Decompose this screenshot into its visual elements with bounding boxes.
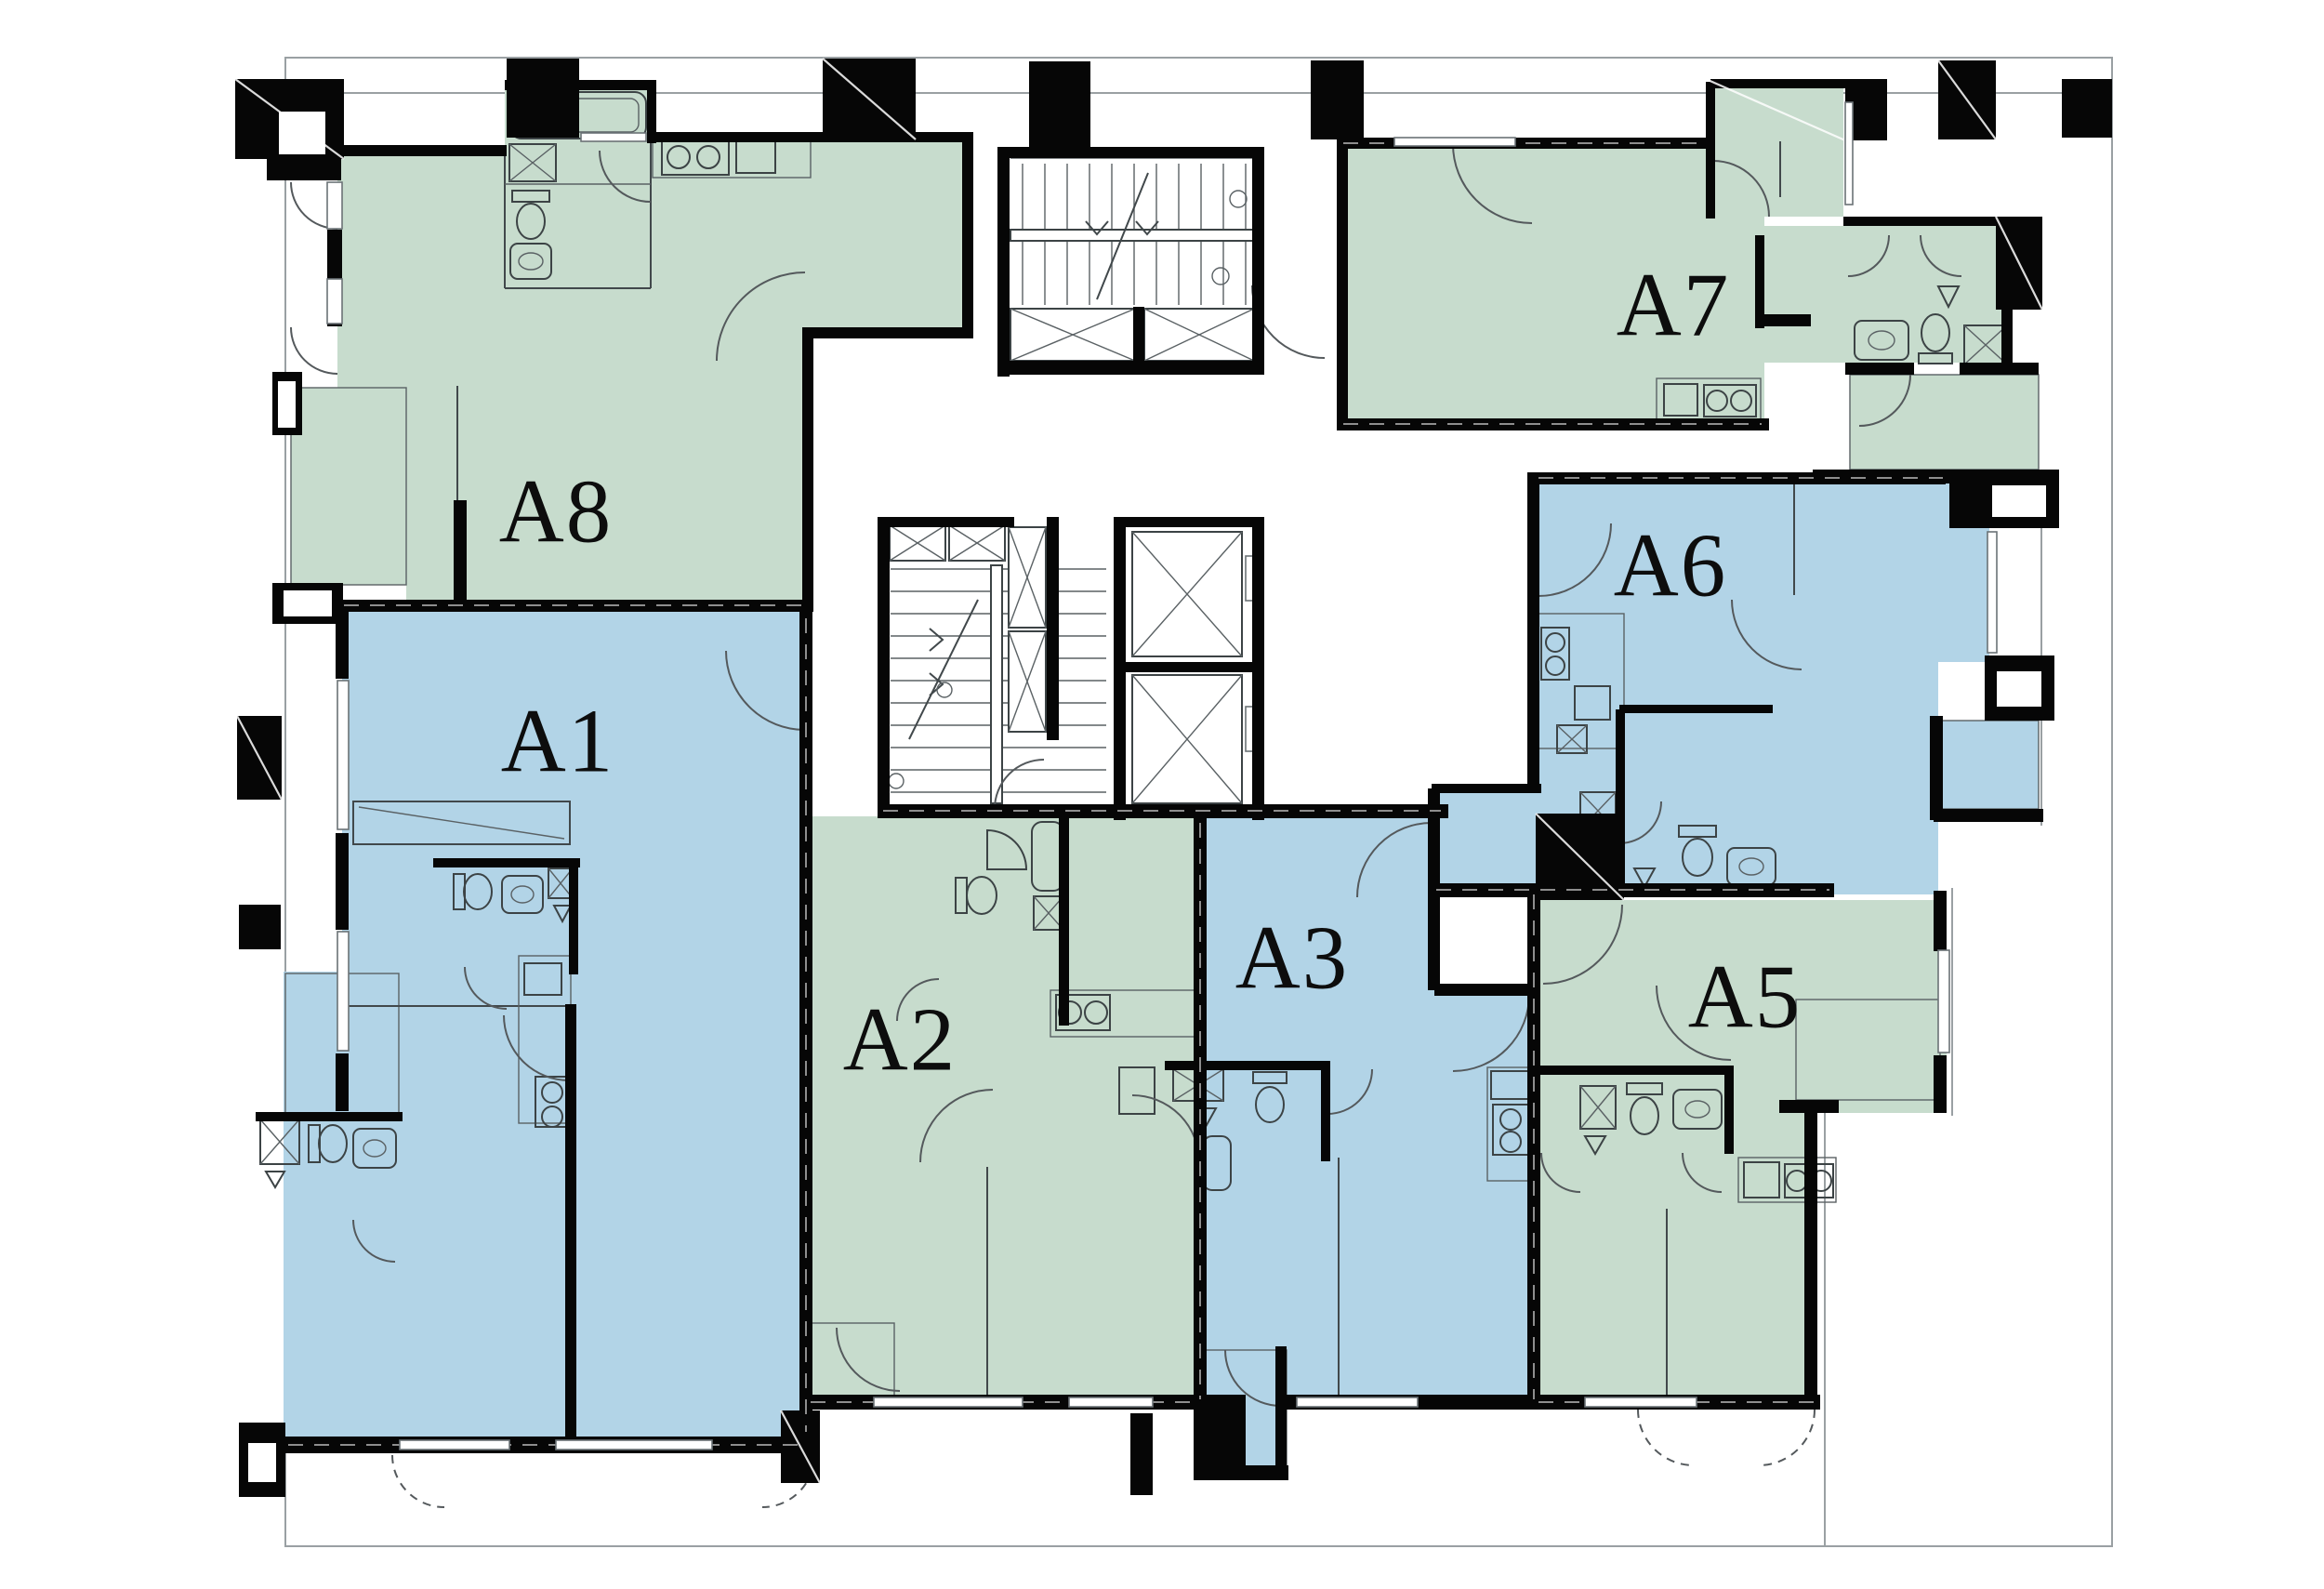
unit-a2-region (807, 816, 1201, 1406)
balcony-a5 (1796, 1000, 1940, 1100)
vent-shaft-top-left (1010, 309, 1135, 361)
balcony-a6 (1940, 721, 2039, 809)
stairwell-upper (1010, 158, 1254, 361)
unit-a3-region (1201, 816, 1534, 1406)
elevator-2 (1132, 675, 1257, 803)
stairwell-main (889, 525, 1106, 803)
floor-plan-drawing (0, 0, 2324, 1589)
vent-shaft-row (890, 525, 1005, 561)
elevator-1 (1132, 532, 1257, 656)
floor-plan-canvas: A1 A2 A3 A5 A6 A7 A8 (0, 0, 2324, 1589)
unit-label-a1: A1 (501, 696, 615, 787)
unit-label-a7: A7 (1617, 260, 1731, 351)
unit-label-a3: A3 (1235, 913, 1350, 1003)
stair-landing-upper (1010, 230, 1254, 241)
vent-shaft-top-right (1144, 309, 1254, 361)
stair-rail-main (991, 565, 1002, 803)
unit-label-a2: A2 (843, 995, 957, 1085)
unit-label-a6: A6 (1614, 521, 1728, 611)
unit-a8-region (337, 86, 971, 612)
shower-head-a1-second (266, 1172, 284, 1187)
unit-label-a5: A5 (1688, 952, 1802, 1042)
balcony-a8 (291, 388, 406, 585)
vent-shaft-tall (1009, 527, 1046, 732)
unit-label-a8: A8 (499, 467, 614, 557)
